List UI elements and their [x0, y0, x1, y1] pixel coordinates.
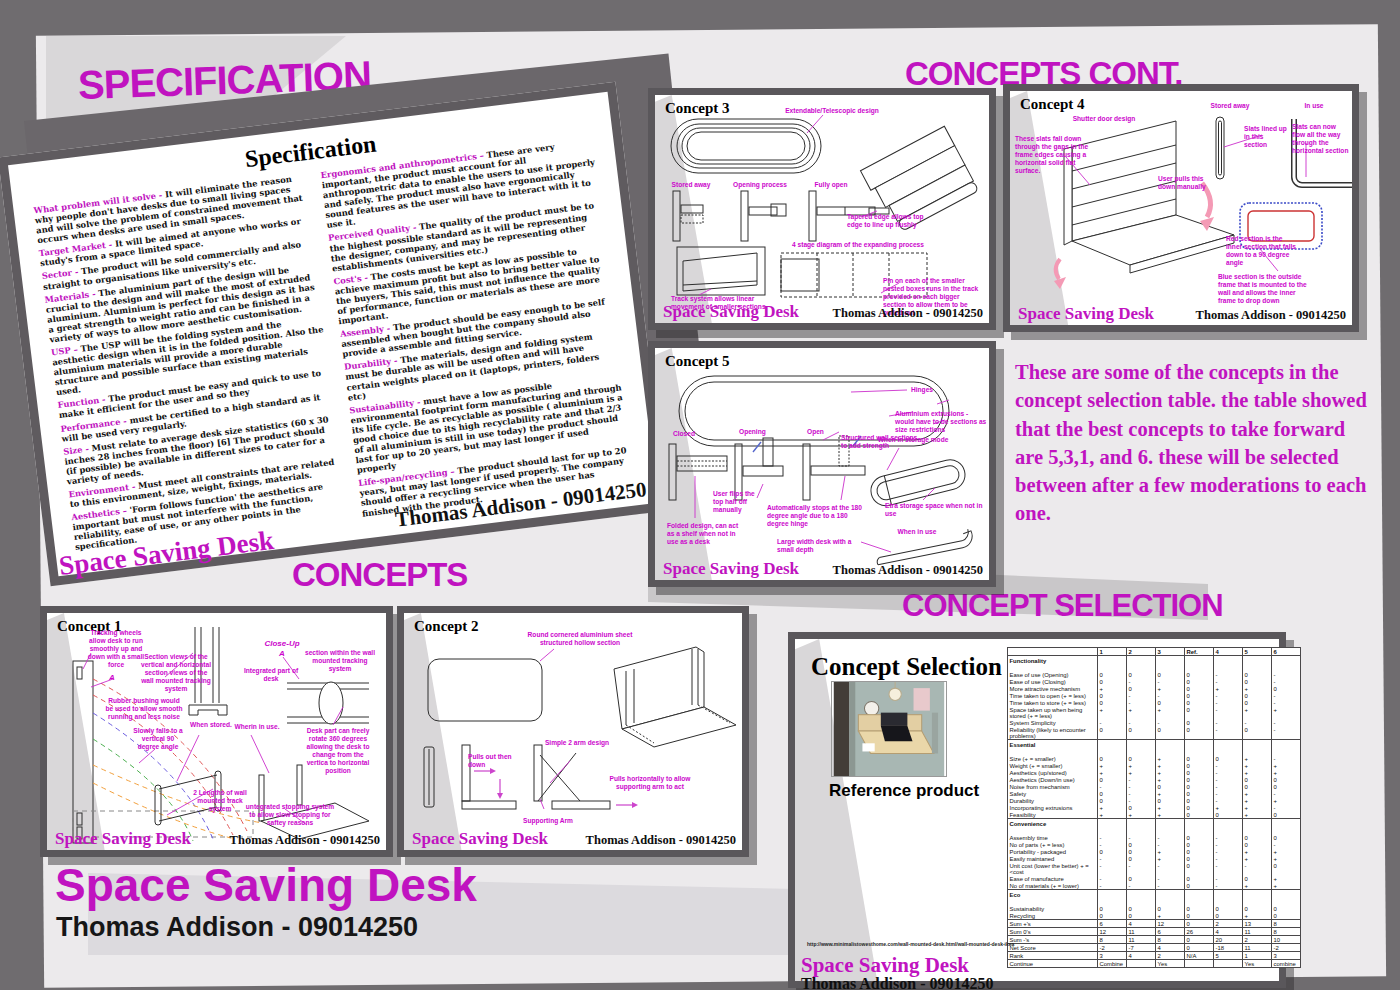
- annotation-storage-mode: When in storage mode: [867, 436, 959, 444]
- table-row: No of parts (+ = less)-0-0-0-: [1008, 841, 1301, 848]
- table-row: Recycling00+00+0: [1008, 912, 1301, 920]
- annotation-extra-storage: Etra storage space when not in use: [885, 502, 985, 518]
- annotation-simple-2-arm: Simple 2 arm design: [544, 739, 610, 747]
- annotation-shutter: Shutter door design: [1056, 115, 1152, 123]
- table-row: Time taken to open (+ = less)0--0-0-: [1008, 692, 1301, 699]
- panel-author: Thomas Addison - 09014250: [586, 833, 736, 848]
- annotation-stops: Automatically stops at the 180 degree an…: [767, 504, 869, 528]
- concept-selection-heading: CONCEPT SELECTION: [902, 588, 1223, 624]
- table-row: System Simplicity---0---: [1008, 719, 1301, 726]
- concept-2-title: Concept 2: [414, 618, 479, 635]
- table-row: Reliability (likely to encounter problem…: [1008, 726, 1301, 740]
- concept-1-panel: Concept 1 Tracking wheels allow desk to …: [40, 606, 393, 857]
- panel-brand: Space Saving Desk: [663, 302, 799, 322]
- table-row: Incorporating extrusions+0+0++-: [1008, 804, 1301, 811]
- concept-4-panel: Concept 4 Shutter door design These slat…: [1003, 84, 1359, 332]
- selection-table: 123Ref.456FunctionalityEase of use (Open…: [1007, 647, 1301, 968]
- table-row: Sum +'s641202138: [1008, 920, 1301, 928]
- table-row: ContinueCombineYesYescombine: [1008, 960, 1301, 968]
- annotation-rubber-bushing: Rubber bushing would be used to allow sm…: [105, 697, 183, 721]
- poster-page: SPECIFICATION CONCEPTS CONT. CONCEPTS CO…: [0, 0, 1400, 990]
- annotation-stored-away: Stored away: [1206, 102, 1254, 110]
- selection-table-host: 123Ref.456FunctionalityEase of use (Open…: [1007, 647, 1275, 968]
- specification-document: Specification What problem will it solve…: [0, 82, 668, 587]
- concept-5-panel: Concept 5 Hinges Aluminium extrusions - …: [648, 341, 996, 587]
- table-row: More attractive mechanism+0+0++0: [1008, 685, 1301, 692]
- spec-right-column: Ergonomics and anthropometrics – These a…: [320, 137, 636, 521]
- annotation-when-in-use: Wherin in use.: [229, 723, 285, 731]
- table-row: Rank342N/A513: [1008, 952, 1301, 960]
- annotation-section-views: Section views of the vertical and horizo…: [139, 653, 213, 693]
- annotation-pulls-out: Pulls out then down: [468, 753, 530, 769]
- annotation-when-in-use: When in use: [887, 528, 947, 536]
- annotation-slats-lined: Slats lined up in this section: [1244, 125, 1288, 149]
- table-row: Durability0-00-++: [1008, 797, 1301, 804]
- table-row: Convenience: [1008, 819, 1301, 835]
- panel-author: Thomas Addison - 09014250: [833, 563, 983, 578]
- annotation-slowly-falls: Slowly falls to a vertical 90 degree ang…: [131, 727, 185, 751]
- annotation-extendable: Extendable/Telescopic design: [767, 107, 897, 115]
- panel-brand: Space Saving Desk: [412, 829, 548, 849]
- panel-brand: Space Saving Desk: [55, 829, 191, 849]
- annotation-section-within: section within the wall mounted tracking…: [305, 649, 375, 673]
- selection-title: Concept Selection: [811, 653, 1002, 681]
- table-row: Aesthetics (up/stored)+++0-++: [1008, 769, 1301, 776]
- spec-left-column: What problem will it solve - It will eli…: [33, 172, 349, 556]
- panel-author: Thomas Addison - 09014250: [230, 833, 380, 848]
- annotation-folded: Folded design, can act as a shelf when n…: [667, 522, 743, 546]
- table-row: Noise from mechanism--00-00: [1008, 783, 1301, 790]
- table-row: Essential: [1008, 740, 1301, 756]
- reference-url: http://www.minimalistowesthome.com/wall-…: [807, 941, 1014, 947]
- selection-note: These are some of the concepts in the co…: [1015, 358, 1367, 528]
- table-row: Ease of manufacture-0-0-0+: [1008, 875, 1301, 882]
- annotation-red-section: Red section is the inner section that fa…: [1226, 235, 1296, 267]
- table-row: Size (+ = smaller)00+00+-: [1008, 755, 1301, 762]
- annotation-stopping-system: untegrated stopping system to allow slow…: [243, 803, 337, 827]
- concepts-heading: CONCEPTS: [292, 556, 467, 594]
- concept-4-title: Concept 4: [1020, 96, 1085, 113]
- annotation-hinges: Hinges: [911, 386, 951, 394]
- poster-title: Space Saving Desk: [55, 858, 477, 912]
- poster-author: Thomas Addison - 09014250: [56, 912, 418, 943]
- annotation-supporting-arm: Supporting Arm: [518, 817, 578, 825]
- table-row: No of materials (+ = lower)---0-++: [1008, 882, 1301, 890]
- panel-footer: Space Saving Desk Thomas Addison - 09014…: [663, 559, 983, 579]
- panel-author: Thomas Addison - 09014250: [833, 306, 983, 321]
- panel-footer: Space Saving Desk Thomas Addison - 09014…: [55, 829, 380, 849]
- concept-5-title: Concept 5: [665, 353, 730, 370]
- panel-author: Thomas Addison - 09014250: [801, 975, 994, 990]
- annotation-large-width: Large width desk with a small depth: [777, 538, 857, 554]
- table-row: Functionality: [1008, 656, 1301, 672]
- table-row: Easily maintaned-0+0-++: [1008, 855, 1301, 862]
- annotation-extrusions: Aluminium extrusions - would have to be …: [895, 410, 987, 434]
- annotation-4-stage: 4 stage diagram of the expanding process: [783, 241, 933, 249]
- annotation-rotate-360: Desk part can freely rotate 360 degrees …: [303, 727, 373, 775]
- annotation-a-label: A: [109, 673, 115, 683]
- table-row: Unit cost (lower the better) + = <cost--…: [1008, 862, 1301, 875]
- annotation-integrated-part: Integrated part of desk: [243, 667, 299, 683]
- annotation-user-pulls: User pulls this down manually: [1158, 175, 1222, 191]
- reference-product-caption: Reference product: [829, 781, 979, 801]
- table-row: Sum -'s8118020210: [1008, 936, 1301, 944]
- table-row: Ease of use (Closing)0--0-0-: [1008, 678, 1301, 685]
- table-row: Portability - packaged00+0-++: [1008, 848, 1301, 855]
- concept-2-panel: Concept 2 Round cornered aluminium sheet…: [397, 606, 749, 857]
- panel-author: Thomas Addison - 09014250: [1196, 308, 1346, 323]
- annotation-slats-fall: These slats fall down through the gaps i…: [1015, 135, 1097, 175]
- annotation-closeup-a: A: [275, 649, 289, 659]
- table-row: Safety0-+0-+-: [1008, 790, 1301, 797]
- annotation-stored-away: Stored away: [667, 181, 715, 189]
- concept-selection-panel: Concept Selection Reference product 123R…: [788, 632, 1286, 988]
- annotation-in-use: In use: [1296, 102, 1332, 110]
- reference-product-photo: [831, 681, 947, 777]
- annotation-slats-flow: Slats can now flow all the way through t…: [1292, 123, 1350, 155]
- table-row: Aesthetics (Down/in use)0-+0-00: [1008, 776, 1301, 783]
- table-row: Time taken to store (+ = less)0-00-0-: [1008, 699, 1301, 706]
- annotation-closed: Closed: [673, 430, 713, 438]
- panel-footer: Space Saving Desk Thomas Addison - 09014…: [412, 829, 736, 849]
- table-row: Assembly time---0-00: [1008, 834, 1301, 841]
- table-row: Net Score-2-740-1811-2: [1008, 944, 1301, 952]
- table-row: Eco: [1008, 890, 1301, 906]
- table-row: Space taken up when being stored (+ = le…: [1008, 706, 1301, 719]
- annotation-fully-open: Fully open: [807, 181, 855, 189]
- panel-footer: Space Saving Desk Thomas Addison - 09014…: [1018, 304, 1346, 324]
- annotation-opening: Opening: [739, 428, 783, 436]
- concept-3-panel: Concept 3 Extendable/Telescopic design S…: [648, 88, 996, 330]
- panel-footer: Space Saving Desk Thomas Addison - 09014…: [663, 302, 983, 322]
- annotation-opening-process: Opening process: [729, 181, 791, 189]
- annotation-closeup: Close-Up: [255, 639, 309, 649]
- concept-2-drawing: [404, 613, 742, 850]
- table-row: 123Ref.456: [1008, 648, 1301, 656]
- annotation-tapered-edge: Tapered edge allows top edge to line up …: [847, 213, 939, 229]
- concept-3-title: Concept 3: [665, 100, 730, 117]
- annotation-pulls-horizontally: Pulls horizontally to allow supporting a…: [604, 775, 696, 791]
- annotation-blue-section: Blue section is the outside frame that i…: [1218, 273, 1310, 305]
- table-row: Weight (+ = smaller)+++0-++: [1008, 762, 1301, 769]
- annotation-flips: User flips the top half off manually: [713, 490, 763, 514]
- table-row: Sum 0's12116264118: [1008, 928, 1301, 936]
- table-row: Sustainability0000000: [1008, 905, 1301, 912]
- panel-brand: Space Saving Desk: [1018, 304, 1154, 324]
- annotation-open: Open: [807, 428, 843, 436]
- table-row: Ease of use (Opening)0000-0-: [1008, 671, 1301, 678]
- table-row: Feasibility+++00+0: [1008, 811, 1301, 819]
- annotation-aluminium-sheet: Round cornered aluminium sheet structure…: [512, 631, 648, 647]
- panel-brand: Space Saving Desk: [663, 559, 799, 579]
